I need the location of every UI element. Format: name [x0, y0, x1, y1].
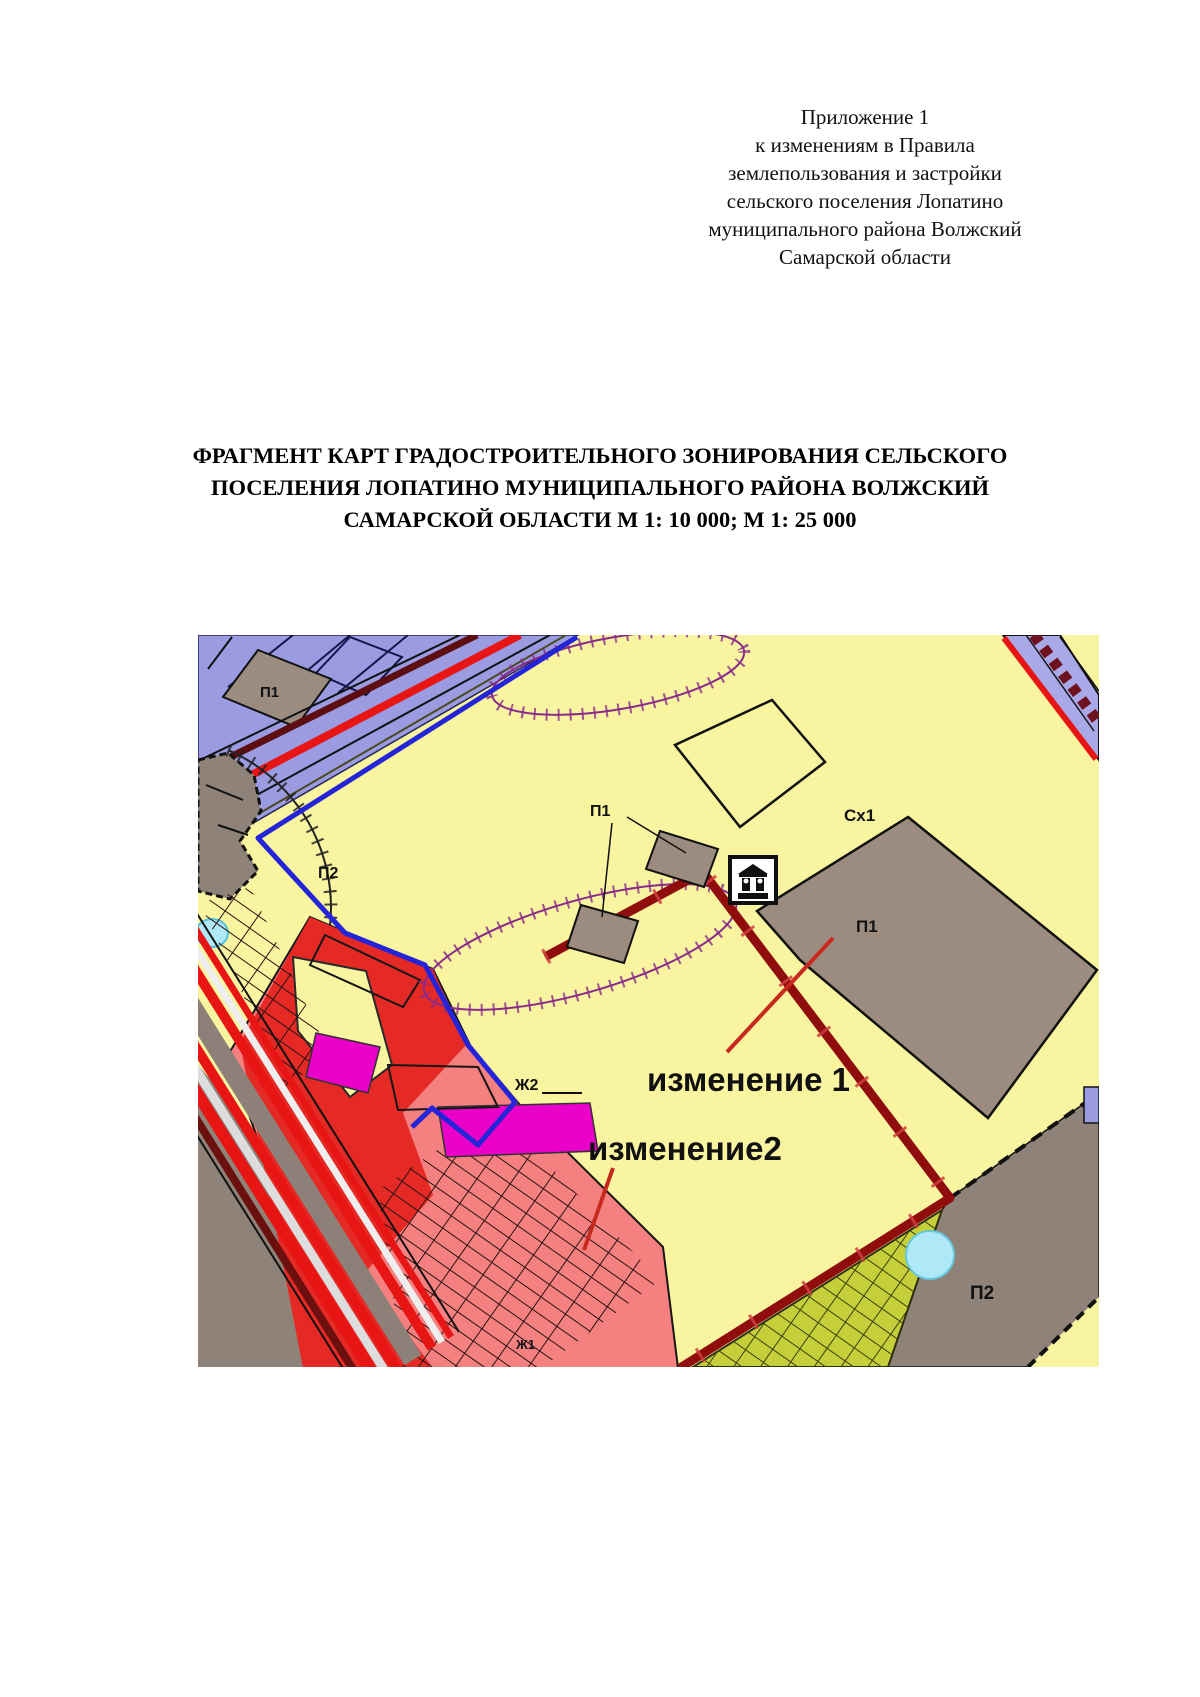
header-line: Самарской области: [675, 243, 1055, 271]
map-title: ФРАГМЕНТ КАРТ ГРАДОСТРОИТЕЛЬНОГО ЗОНИРОВ…: [0, 440, 1200, 536]
label-p1-pair: П1: [590, 803, 611, 820]
label-p1-nw: П1: [260, 684, 279, 701]
title-line: САМАРСКОЙ ОБЛАСТИ М 1: 10 000; М 1: 25 0…: [0, 504, 1200, 536]
title-line: ПОСЕЛЕНИЯ ЛОПАТИНО МУНИЦИПАЛЬНОГО РАЙОНА…: [0, 472, 1200, 504]
label-p1-large: П1: [856, 917, 878, 936]
title-line: ФРАГМЕНТ КАРТ ГРАДОСТРОИТЕЛЬНОГО ЗОНИРОВ…: [0, 440, 1200, 472]
header-line: сельского поселения Лопатино: [675, 187, 1055, 215]
label-p2-arc: П2: [318, 865, 339, 882]
change1-label: изменение 1: [647, 1061, 850, 1098]
parcel-violet-east: [1084, 1087, 1099, 1123]
header-line: муниципального района Волжский: [675, 215, 1055, 243]
landmark-icon: [730, 857, 776, 903]
change2-label: изменение2: [588, 1130, 782, 1167]
zoning-map: П1: [198, 635, 1099, 1367]
header-line: землепользования и застройки: [675, 159, 1055, 187]
label-zh1: Ж1: [515, 1337, 535, 1352]
label-cx1: Сх1: [844, 806, 875, 825]
header-line: к изменениям в Правила: [675, 131, 1055, 159]
pond-se: [906, 1231, 954, 1279]
document-page: Приложение 1 к изменениям в Правила земл…: [0, 0, 1200, 1697]
header-line: Приложение 1: [675, 103, 1055, 131]
appendix-header: Приложение 1 к изменениям в Правила земл…: [675, 103, 1055, 271]
label-zh2: Ж2: [514, 1077, 538, 1094]
label-p2-se: П2: [970, 1283, 994, 1304]
